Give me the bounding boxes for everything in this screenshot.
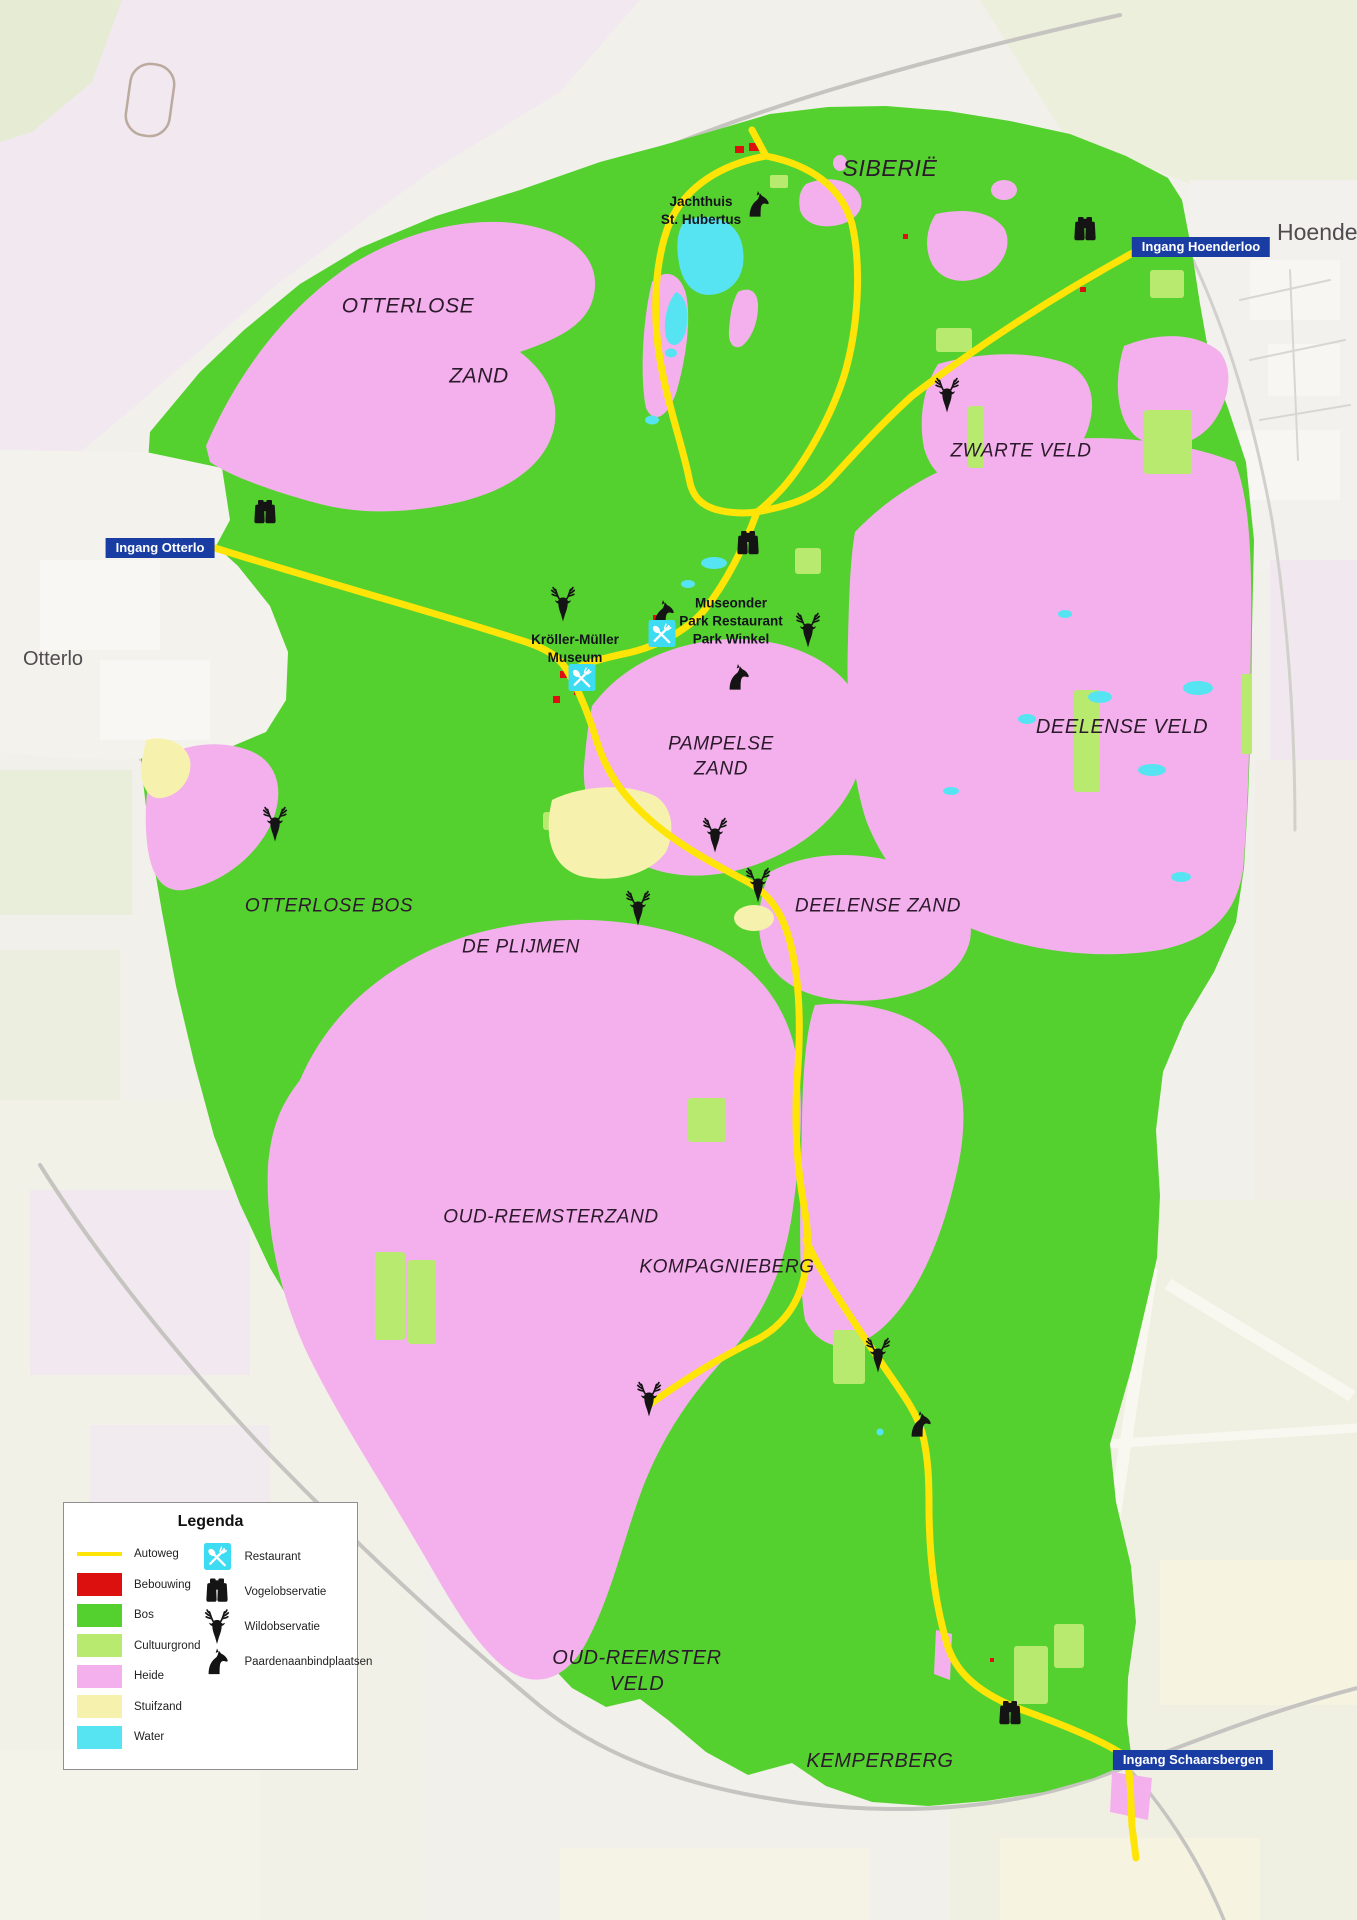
horse-icon — [200, 1648, 234, 1676]
deer-icon — [259, 806, 291, 849]
restaurant-icon — [569, 664, 596, 696]
region-label: KEMPERBERG — [806, 1748, 953, 1774]
binoculars-icon — [1070, 217, 1100, 250]
entrance-badge: Ingang Hoenderloo — [1132, 237, 1270, 257]
legend-item: Vogelobservatie — [200, 1574, 372, 1609]
legend-item: Restaurant — [200, 1539, 372, 1574]
cultuurgrond-swatch — [77, 1634, 122, 1657]
deer-icon — [547, 586, 579, 629]
deer-icon — [699, 817, 731, 860]
legend-symbol-items: RestaurantVogelobservatieWildobservatieP… — [200, 1539, 372, 1753]
legend-item: Cultuurgrond — [77, 1631, 200, 1662]
legend-area-items: AutowegBebouwingBosCultuurgrondHeideStui… — [77, 1539, 200, 1753]
legend: Legenda AutowegBebouwingBosCultuurgrondH… — [63, 1502, 358, 1770]
region-label: OTTERLOSE BOS — [245, 895, 413, 920]
water-swatch — [77, 1726, 122, 1749]
entrance-badge: Ingang Schaarsbergen — [1113, 1750, 1273, 1770]
binoculars-icon — [733, 531, 763, 564]
bebouwing-swatch — [77, 1573, 122, 1596]
legend-item: Bebouwing — [77, 1570, 200, 1601]
legend-item-label: Cultuurgrond — [134, 1640, 200, 1652]
entrance-badge: Ingang Otterlo — [106, 538, 215, 558]
region-label: DEELENSE VELD — [1036, 714, 1208, 740]
legend-item: Autoweg — [77, 1539, 200, 1570]
legend-item-label: Bos — [134, 1609, 154, 1621]
bos-swatch — [77, 1604, 122, 1627]
poi-label: Kröller-Müller Museum — [531, 631, 619, 667]
park-map: SIBERIËOTTERLOSEZANDZWARTE VELDDEELENSE … — [0, 0, 1357, 1920]
horse-icon — [724, 664, 752, 697]
horse-icon — [906, 1411, 934, 1444]
legend-item: Bos — [77, 1600, 200, 1631]
legend-item-label: Restaurant — [244, 1551, 300, 1563]
binoculars-icon — [200, 1578, 234, 1606]
region-label: KOMPAGNIEBERG — [639, 1256, 814, 1281]
poi-label: Jachthuis St. Hubertus — [661, 193, 741, 229]
region-label: OUD-REEMSTERZAND — [443, 1206, 658, 1231]
legend-item-label: Vogelobservatie — [244, 1586, 326, 1598]
region-label: ZWARTE VELD — [950, 440, 1091, 465]
legend-title: Legenda — [64, 1513, 357, 1531]
legend-item-label: Autoweg — [134, 1548, 179, 1560]
restaurant-icon — [200, 1543, 234, 1570]
region-label: OUD-REEMSTER VELD — [552, 1645, 721, 1697]
poi-label: Museonder Park Restaurant Park Winkel — [679, 594, 783, 647]
legend-item-label: Stuifzand — [134, 1701, 182, 1713]
legend-item: Water — [77, 1722, 200, 1753]
deer-icon — [622, 890, 654, 933]
region-label: SIBERIË — [843, 154, 938, 184]
legend-item: Paardenaanbindplaatsen — [200, 1644, 372, 1679]
legend-item-label: Paardenaanbindplaatsen — [244, 1656, 372, 1668]
deer-icon — [862, 1337, 894, 1380]
stuifzand-swatch — [77, 1695, 122, 1718]
deer-icon — [792, 612, 824, 655]
legend-item-label: Heide — [134, 1670, 164, 1682]
legend-item-label: Water — [134, 1731, 164, 1743]
horse-icon — [744, 191, 772, 224]
legend-item: Wildobservatie — [200, 1609, 372, 1644]
legend-item: Stuifzand — [77, 1692, 200, 1723]
deer-icon — [931, 377, 963, 420]
deer-icon — [633, 1381, 665, 1424]
binoculars-icon — [250, 500, 280, 533]
legend-item-label: Bebouwing — [134, 1579, 191, 1591]
legend-item-label: Wildobservatie — [244, 1621, 319, 1633]
region-label: DEELENSE ZAND — [795, 895, 961, 920]
restaurant-icon — [649, 620, 676, 652]
legend-item: Heide — [77, 1661, 200, 1692]
deer-icon — [200, 1608, 234, 1646]
autoweg-swatch — [77, 1552, 122, 1556]
deer-icon — [742, 867, 774, 910]
region-label: DE PLIJMEN — [462, 936, 580, 961]
region-label: ZAND — [449, 362, 509, 389]
region-label: PAMPELSE ZAND — [668, 732, 774, 781]
town-label: Hoenderloo — [1277, 218, 1357, 248]
town-label: Otterlo — [23, 646, 83, 672]
heide-swatch — [77, 1665, 122, 1688]
region-label: OTTERLOSE — [342, 292, 475, 319]
binoculars-icon — [995, 1701, 1025, 1734]
